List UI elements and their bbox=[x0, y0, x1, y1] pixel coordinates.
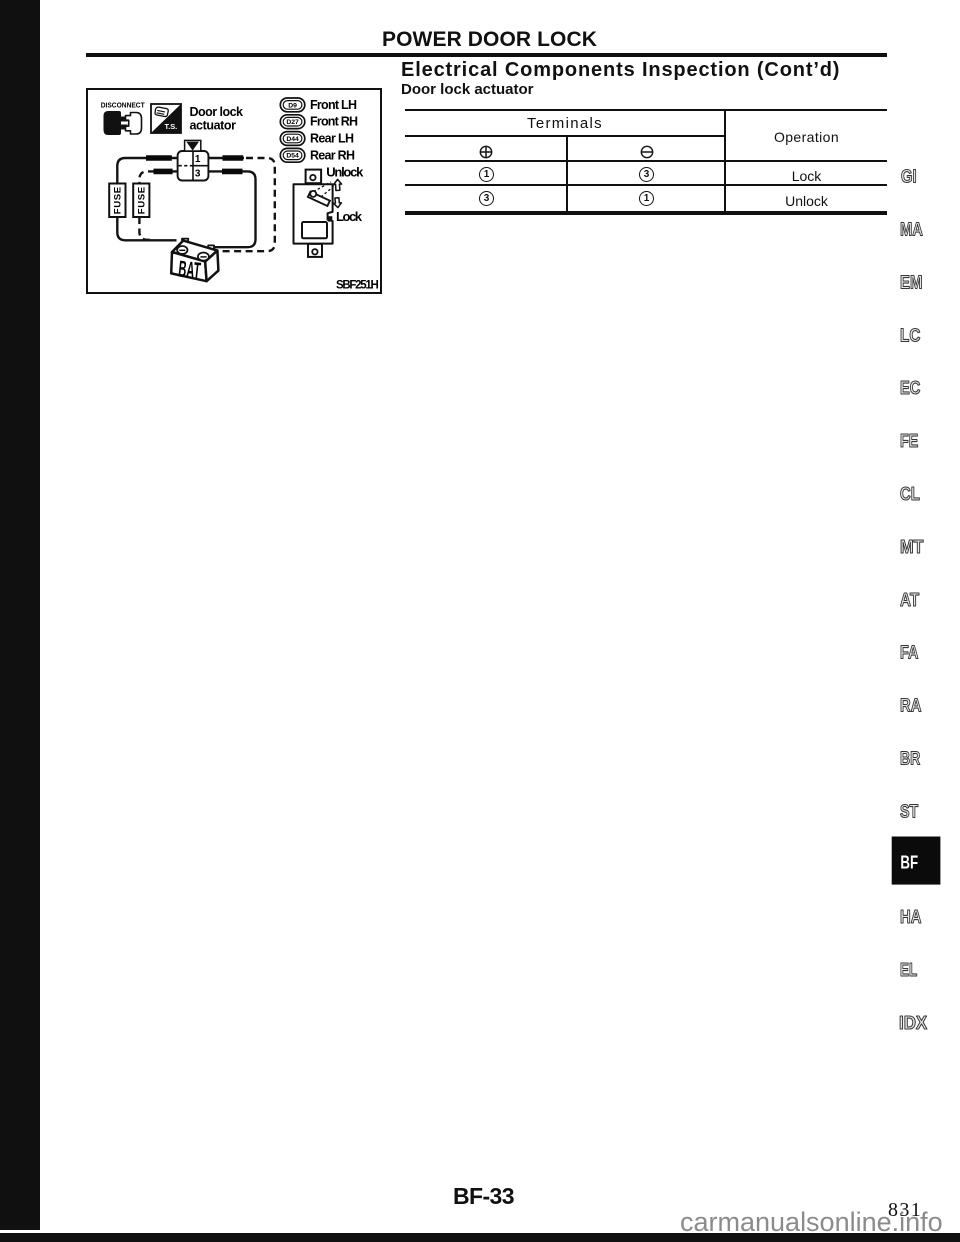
svg-text:Lock: Lock bbox=[336, 209, 363, 224]
svg-text:FE: FE bbox=[900, 430, 918, 451]
svg-text:Front RH: Front RH bbox=[310, 115, 358, 129]
svg-text:D27: D27 bbox=[286, 119, 299, 126]
svg-text:RA: RA bbox=[900, 695, 921, 716]
svg-text:D54: D54 bbox=[286, 153, 299, 160]
svg-text:Door lock: Door lock bbox=[190, 105, 244, 119]
svg-text:MT: MT bbox=[900, 536, 924, 557]
svg-text:MA: MA bbox=[900, 219, 923, 240]
svg-text:Unlock: Unlock bbox=[326, 165, 364, 180]
svg-text:DISCONNECT: DISCONNECT bbox=[101, 100, 146, 109]
svg-text:EM: EM bbox=[900, 272, 922, 293]
svg-text:BF: BF bbox=[900, 852, 918, 873]
svg-text:LC: LC bbox=[900, 324, 920, 346]
svg-text:AT: AT bbox=[900, 588, 920, 610]
svg-text:Front LH: Front LH bbox=[310, 98, 357, 112]
svg-text:1: 1 bbox=[195, 154, 201, 165]
svg-text:Rear RH: Rear RH bbox=[310, 148, 355, 162]
svg-text:SBF251H: SBF251H bbox=[336, 279, 379, 291]
svg-text:FA: FA bbox=[900, 642, 919, 663]
svg-text:FUSE: FUSE bbox=[113, 186, 124, 214]
svg-text:EC: EC bbox=[900, 377, 920, 398]
svg-text:CL: CL bbox=[900, 483, 920, 504]
svg-text:BAT: BAT bbox=[177, 255, 202, 283]
svg-text:Rear LH: Rear LH bbox=[310, 132, 354, 146]
svg-text:BR: BR bbox=[900, 748, 920, 769]
svg-text:T.S.: T.S. bbox=[165, 122, 178, 131]
svg-text:HA: HA bbox=[900, 907, 921, 928]
svg-text:FUSE: FUSE bbox=[137, 186, 148, 214]
svg-text:EL: EL bbox=[900, 960, 917, 981]
svg-text:GI: GI bbox=[901, 166, 917, 187]
svg-text:D44: D44 bbox=[286, 136, 299, 143]
svg-text:3: 3 bbox=[195, 168, 201, 179]
svg-text:IDX: IDX bbox=[899, 1012, 927, 1033]
svg-text:D9: D9 bbox=[288, 102, 297, 109]
svg-text:actuator: actuator bbox=[190, 118, 237, 132]
svg-text:ST: ST bbox=[900, 801, 919, 822]
